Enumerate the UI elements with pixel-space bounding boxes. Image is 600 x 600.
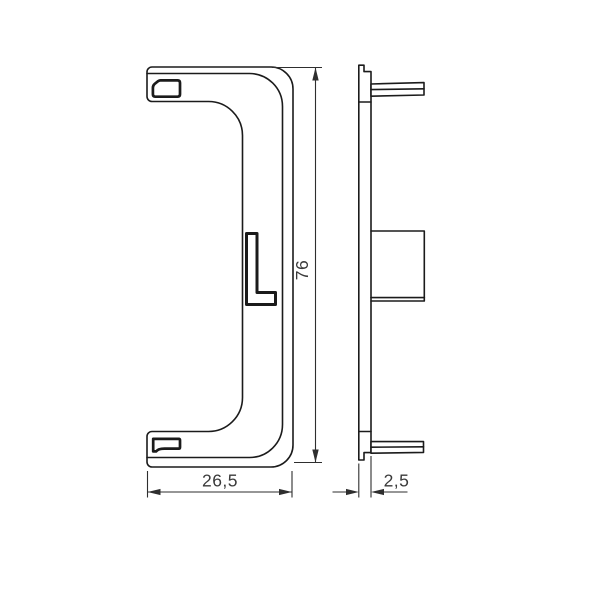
side-body-outline: [359, 65, 371, 460]
front-outer-contour: [147, 67, 293, 467]
thickness-arrow-right-icon: [346, 489, 359, 495]
drawing-canvas: 76 26,5 2,5: [0, 0, 600, 600]
thickness-arrow-left-icon: [371, 489, 384, 495]
front-rim-line: [147, 73, 283, 457]
dimension-thickness: 2,5: [333, 456, 410, 498]
height-dimension-label: 76: [292, 260, 312, 280]
thickness-extension-lines: [359, 456, 371, 498]
width-arrow-right-icon: [279, 489, 292, 495]
height-arrow-up-icon: [312, 68, 318, 81]
side-top-tab-midline: [371, 89, 424, 90]
width-dimension-label: 26,5: [202, 471, 238, 491]
front-top-clip: [153, 80, 180, 96]
side-view: [359, 65, 425, 460]
front-latch-slot: [247, 234, 276, 305]
technical-drawing: 76 26,5 2,5: [0, 0, 600, 600]
side-latch-boss: [371, 231, 424, 301]
dimension-width: 26,5: [148, 471, 293, 498]
thickness-dimension-label: 2,5: [384, 471, 410, 491]
dimensions: 76 26,5 2,5: [148, 68, 410, 498]
front-bottom-clip: [153, 439, 180, 452]
dimension-height: 76: [272, 68, 322, 463]
width-arrow-left-icon: [148, 489, 161, 495]
front-view: [147, 67, 293, 467]
height-arrow-down-icon: [312, 450, 318, 463]
